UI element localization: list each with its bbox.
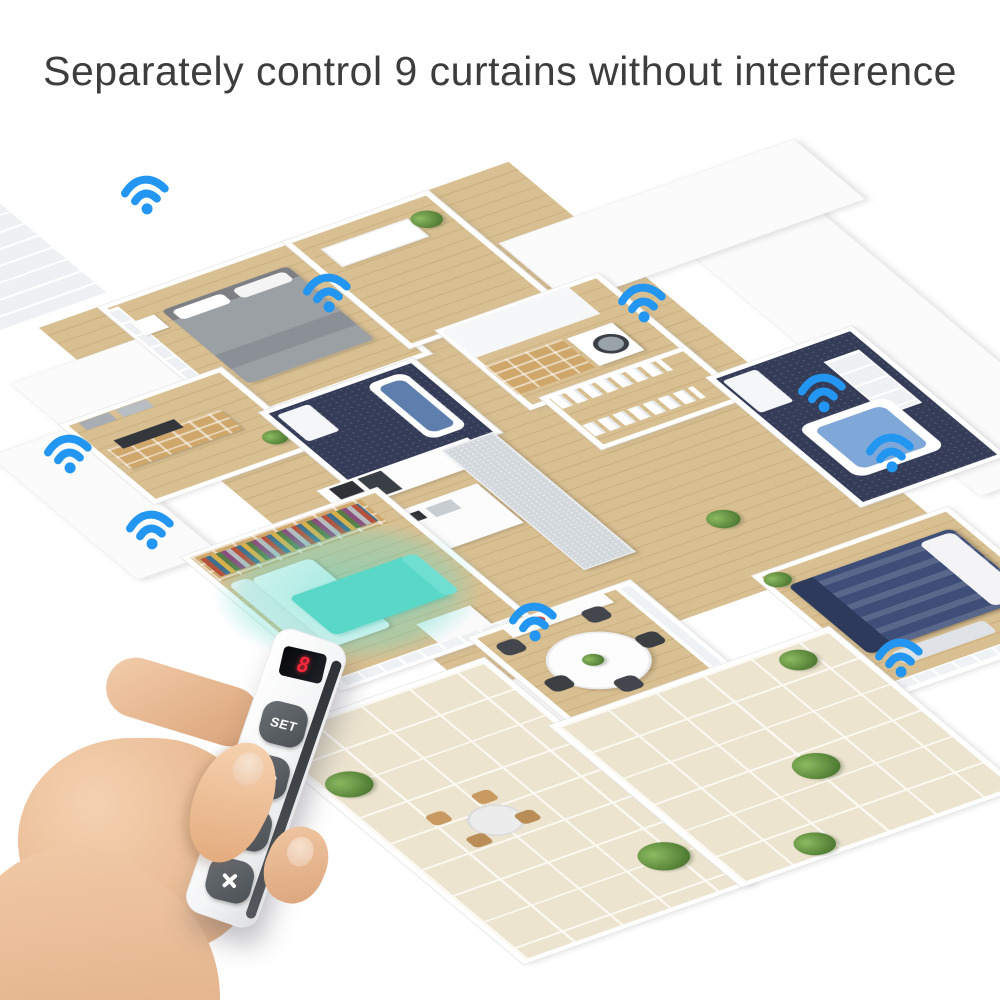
channel-digit: 8 bbox=[292, 652, 313, 677]
headline: Separately control 9 curtains without in… bbox=[0, 48, 1000, 95]
set-button-label: SET bbox=[268, 714, 299, 735]
set-button: SET bbox=[256, 698, 311, 751]
close-button bbox=[202, 854, 257, 907]
wifi-icon bbox=[502, 592, 563, 646]
cross-icon bbox=[220, 871, 239, 890]
wifi-icon bbox=[791, 363, 852, 417]
wifi-icon bbox=[868, 628, 929, 682]
wifi-icon bbox=[611, 273, 672, 327]
remote-channel-display: 8 bbox=[278, 645, 328, 684]
fingertip-nail bbox=[283, 833, 318, 871]
thumb-nail bbox=[227, 747, 269, 791]
wifi-icon bbox=[296, 263, 357, 317]
wifi-icon bbox=[859, 423, 920, 477]
wifi-icon bbox=[37, 424, 98, 478]
wifi-icon bbox=[114, 165, 175, 219]
wifi-icon bbox=[119, 500, 180, 554]
product-banner: Separately control 9 curtains without in… bbox=[0, 0, 1000, 1000]
